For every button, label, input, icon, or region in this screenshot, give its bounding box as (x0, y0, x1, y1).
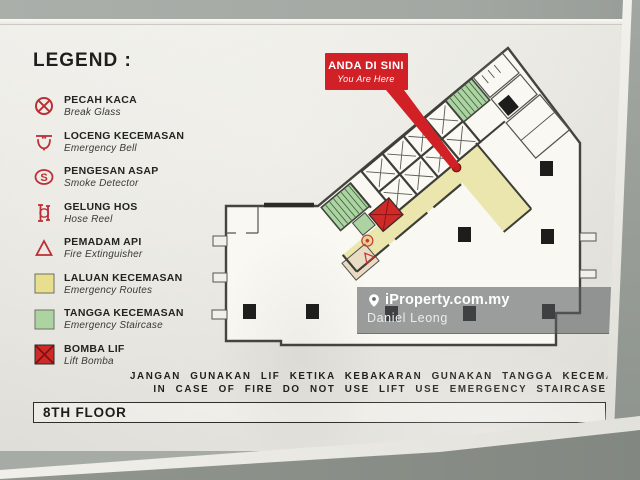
smoke-detector-icon: S (33, 166, 55, 188)
fire-warning-english: IN CASE OF FIRE DO NOT USE LIFT USE EMER… (130, 384, 630, 397)
legend-subtitle: Break Glass (64, 108, 137, 119)
watermark-brand: iProperty.com.my (385, 292, 510, 308)
legend-item-fire-extinguisher: PEMADAM API Fire Extinguisher (33, 237, 223, 261)
fire-warning-malay: JANGAN GUNAKAN LIF KETIKA KEBAKARAN GUNA… (130, 371, 630, 384)
legend-item-break-glass: PECAH KACA Break Glass (33, 95, 223, 119)
legend-item-emergency-bell: LOCENG KECEMASAN Emergency Bell (33, 131, 223, 155)
legend-item-emergency-routes: LALUAN KECEMASAN Emergency Routes (33, 273, 223, 297)
panel-top-edge (0, 19, 640, 25)
legend-subtitle: Fire Extinguisher (64, 250, 142, 261)
legend-title: BOMBA LIF (64, 344, 125, 355)
callout-title: ANDA DI SINI (328, 60, 404, 72)
callout-subtitle: You Are Here (337, 74, 394, 84)
background-wall-top (0, 0, 640, 19)
svg-text:S: S (40, 172, 47, 184)
legend-item-smoke-detector: S PENGESAN ASAP Smoke Detector (33, 166, 223, 190)
legend-title: TANGGA KECEMASAN (64, 308, 184, 319)
legend-subtitle: Emergency Staircase (64, 321, 184, 332)
legend-title: LOCENG KECEMASAN (64, 131, 184, 142)
emergency-staircase-swatch (33, 308, 55, 330)
emergency-bell-icon (33, 131, 55, 153)
fire-warning-text: JANGAN GUNAKAN LIF KETIKA KEBAKARAN GUNA… (130, 371, 630, 396)
legend-title: PECAH KACA (64, 95, 137, 106)
legend-title: PENGESAN ASAP (64, 166, 159, 177)
right-wall-fins (580, 233, 596, 278)
legend: LEGEND : PECAH KACA Break Glass LOCENG K… (33, 50, 223, 379)
legend-title: GELUNG HOS (64, 202, 138, 213)
legend-item-hose-reel: GELUNG HOS Hose Reel (33, 202, 223, 226)
location-pin-icon (367, 293, 381, 308)
fire-extinguisher-icon (33, 237, 55, 259)
legend-subtitle: Hose Reel (64, 215, 138, 226)
emergency-route-swatch (33, 273, 55, 295)
photo-of-floor-plan-sign: ANDA DI SINI You Are Here iProperty.com.… (0, 0, 640, 480)
watermark-agent: Daniel Leong (367, 311, 634, 325)
legend-heading: LEGEND : (33, 50, 223, 72)
break-glass-icon (33, 95, 55, 117)
legend-subtitle: Lift Bomba (64, 357, 125, 368)
legend-title: PEMADAM API (64, 237, 142, 248)
floor-label: 8TH FLOOR (43, 405, 127, 420)
hose-reel-icon (33, 202, 55, 224)
legend-subtitle: Smoke Detector (64, 179, 159, 190)
floor-label-box: 8TH FLOOR (33, 402, 606, 423)
fire-lift-swatch (33, 344, 55, 366)
legend-title: LALUAN KECEMASAN (64, 273, 183, 284)
watermark-band: iProperty.com.my Daniel Leong (357, 287, 634, 334)
legend-subtitle: Emergency Bell (64, 144, 184, 155)
legend-item-emergency-staircase: TANGGA KECEMASAN Emergency Staircase (33, 308, 223, 332)
legend-subtitle: Emergency Routes (64, 286, 183, 297)
legend-item-fire-lift: BOMBA LIF Lift Bomba (33, 344, 223, 368)
